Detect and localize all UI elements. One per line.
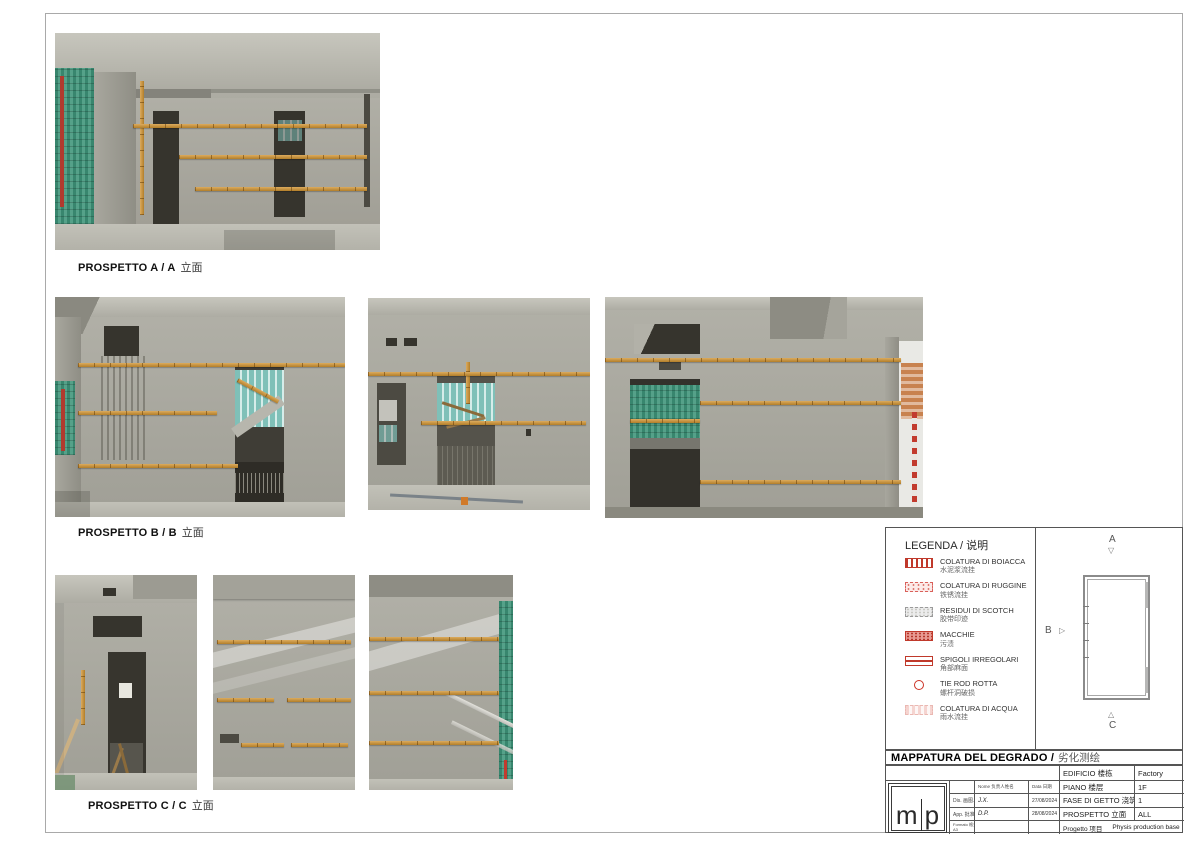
sig-app-label: App. 批准人: [949, 807, 974, 820]
rubble: [55, 491, 90, 517]
dark-object: [220, 734, 238, 743]
plan-outline-inner: [1087, 579, 1146, 696]
ceiling-beam: [133, 575, 197, 599]
bamboo-pole: [700, 480, 900, 484]
drip-stains: [101, 356, 145, 459]
bamboo-pole: [291, 743, 348, 747]
legend-item: TIE ROD ROTTA螺杆洞破损: [905, 679, 1033, 697]
bamboo-pole-vertical: [140, 81, 144, 216]
plan-tick: [1083, 623, 1089, 624]
photo-prospetto-a: [55, 33, 380, 250]
plan-wall-segment: [1145, 582, 1148, 609]
legend-item: MACCHIE污渍: [905, 630, 1033, 648]
bamboo-pole: [421, 421, 585, 425]
bamboo-pole: [241, 743, 284, 747]
striped-pole: [912, 412, 917, 507]
floor: [213, 777, 355, 790]
legend-item: RESIDUI DI SCOTCH胶带印迹: [905, 606, 1033, 624]
bamboo-pole: [369, 741, 499, 745]
empty-cell: [1028, 820, 1059, 834]
ceiling-slot: [103, 588, 116, 597]
key-plan: A ▽ B ▷ △ C: [1035, 527, 1183, 750]
plan-tick: [1083, 657, 1089, 658]
legend-item: COLATURA DI BOIACCA水泥浆流挂: [905, 557, 1033, 575]
caption-b-text: PROSPETTO B / B: [78, 527, 177, 539]
wall-slot: [404, 338, 417, 345]
wall-niche: [93, 616, 141, 638]
legend-label-zh: 铁锈流挂: [940, 591, 1027, 600]
floor-edge: [605, 507, 923, 518]
bamboo-pole: [78, 464, 238, 468]
logo-cell: m p: [886, 780, 949, 834]
bamboo-pole: [133, 124, 367, 128]
wall-slot: [386, 338, 397, 345]
bamboo-pole: [369, 637, 499, 641]
legend-label-zh: 雨水流挂: [940, 713, 1018, 722]
ceiling-beam: [369, 575, 513, 597]
sig-app-name: D.P.: [974, 807, 1028, 820]
concrete-column: [94, 72, 136, 224]
legend-item: COLATURA DI RUGGINE铁锈流挂: [905, 581, 1033, 599]
ceiling-beam: [770, 297, 846, 339]
bamboo-pole: [368, 372, 590, 376]
floor: [55, 773, 197, 790]
swatch-colatura-ruggine: [905, 582, 933, 592]
progetto-value: Physis production base: [1112, 824, 1179, 831]
plan-wall-segment: [1145, 667, 1148, 694]
netting-glimpse: [55, 381, 75, 456]
bamboo-pole: [179, 155, 368, 159]
legend-item: COLATURA DI ACQUA雨水流挂: [905, 704, 1033, 722]
empty-cell: [974, 820, 1028, 834]
photo-prospetto-c3: [369, 575, 513, 790]
prospetto-label: PROSPETTO 立面: [1059, 807, 1134, 820]
legend-label: TIE ROD ROTTA: [940, 679, 997, 688]
photo-prospetto-b3: [605, 297, 923, 518]
edificio-value: Factory: [1134, 766, 1184, 780]
caption-prospetto-a: PROSPETTO A / A立面: [78, 259, 203, 275]
mesh-fence: [437, 446, 495, 484]
wall-niche: [104, 326, 139, 357]
titleblock-table: m p Nome 负责人姓名 Data 日期 Dis. 画图人 J.X. 27/…: [885, 765, 1183, 833]
titleblock-title-it: MAPPATURA DEL DEGRADO /: [891, 752, 1054, 764]
sig-nome-header: Nome 负责人姓名: [974, 780, 1028, 793]
scaffold-bar: [630, 419, 700, 423]
fase-value: 1: [1134, 793, 1184, 807]
plan-marker-c: C: [1109, 721, 1116, 731]
formato-value: A3: [953, 827, 974, 832]
caption-b-zh: 立面: [182, 527, 204, 539]
bright-window-beyond: [119, 683, 132, 698]
legend-label-zh: 螺杆洞破损: [940, 689, 997, 698]
arrow-up-icon: △: [1108, 711, 1114, 719]
plan-tick: [1083, 640, 1089, 641]
caption-c-zh: 立面: [192, 800, 214, 812]
legend-label: COLATURA DI ACQUA: [940, 704, 1018, 713]
niche-light: [634, 324, 701, 355]
legend-label: COLATURA DI BOIACCA: [940, 557, 1025, 566]
bamboo-pole: [195, 187, 367, 191]
legend-label-zh: 水泥浆流挂: [940, 566, 1025, 575]
logo-letter-p: p: [925, 802, 939, 828]
arrow-right-icon: ▷: [1059, 627, 1065, 635]
edificio-label: EDIFICIO 楼栋: [1059, 766, 1134, 780]
progetto-label: Progetto 项目: [1063, 823, 1102, 833]
swatch-tie-rod-rotta: [905, 680, 933, 690]
swatch-spigoli-irregolari: [905, 656, 933, 666]
formato-cell: Formato 格式A3: [949, 820, 974, 834]
floor: [55, 502, 345, 517]
distant-building: [901, 363, 923, 418]
swatch-residui-scotch: [905, 607, 933, 617]
legend-label: RESIDUI DI SCOTCH: [940, 606, 1014, 615]
plan-marker-a: A: [1109, 535, 1116, 545]
opening-highlight: [379, 400, 397, 421]
caption-prospetto-c: PROSPETTO C / C立面: [88, 797, 214, 813]
photo-prospetto-c2: [213, 575, 355, 790]
yellow-stick: [81, 670, 85, 726]
bamboo-pole: [700, 401, 900, 405]
drawing-sheet: PROSPETTO A / A立面: [0, 0, 1200, 848]
mesh-fence: [235, 473, 284, 493]
titleblock-title-zh: 劣化测绘: [1058, 750, 1100, 765]
legend-label: COLATURA DI RUGGINE: [940, 581, 1027, 590]
fase-label: FASE DI GETTO 浇筑阶段: [1059, 793, 1134, 807]
legend-title: LEGENDA / 说明: [905, 537, 988, 553]
ceiling-strip: [368, 298, 590, 315]
deck-beyond: [630, 438, 700, 449]
ceiling-strip: [605, 297, 923, 310]
scaffold-pole-red: [61, 389, 65, 451]
legend-label-zh: 角部麻面: [940, 664, 1018, 673]
legend-label: SPIGOLI IRREGOLARI: [940, 655, 1018, 664]
company-logo: m p: [888, 783, 947, 833]
caption-c-text: PROSPETTO C / C: [88, 800, 187, 812]
bamboo-pole: [217, 640, 350, 644]
bamboo-pole: [78, 411, 217, 415]
prospetto-value: ALL: [1134, 807, 1184, 820]
sig-app-date: 28/08/2024: [1028, 807, 1059, 820]
legend-label: MACCHIE: [940, 630, 975, 639]
bamboo-pole: [78, 363, 345, 367]
floor-shadow: [224, 230, 335, 250]
legend-item: SPIGOLI IRREGOLARI角部麻面: [905, 655, 1033, 673]
window-opening: [377, 383, 406, 466]
orange-object: [461, 497, 468, 504]
bamboo-pole-vertical: [466, 362, 470, 404]
caption-a-zh: 立面: [181, 262, 203, 274]
photo-prospetto-c1: [55, 575, 197, 790]
swatch-macchie: [905, 631, 933, 641]
legend-label-zh: 污渍: [940, 640, 975, 649]
sig-corner-cell: [949, 780, 974, 793]
bamboo-pole: [217, 698, 274, 702]
green-patch: [55, 775, 75, 790]
sig-dis-label: Dis. 画图人: [949, 793, 974, 807]
sig-data-header: Data 日期: [1028, 780, 1059, 793]
opening-glimpse: [379, 425, 397, 442]
bamboo-pole: [605, 358, 901, 362]
sig-dis-date: 27/08/2024: [1028, 793, 1059, 807]
legend-list: COLATURA DI BOIACCA水泥浆流挂 COLATURA DI RUG…: [905, 557, 1033, 728]
logo-letter-m: m: [896, 802, 918, 828]
bamboo-pole: [287, 698, 351, 702]
logo-divider-bar: [921, 799, 922, 831]
plan-tick: [1083, 606, 1089, 607]
progetto-cell: Progetto 项目Physis production base: [1059, 820, 1184, 834]
piano-value: 1F: [1134, 780, 1184, 793]
sig-dis-name: J.X.: [974, 793, 1028, 807]
legend-label-zh: 胶带印迹: [940, 615, 1014, 624]
photo-prospetto-b1: [55, 297, 345, 517]
plan-outline: [1083, 575, 1150, 700]
titleblock-title: MAPPATURA DEL DEGRADO / 劣化测绘: [885, 750, 1183, 765]
wall-edge-shade: [55, 603, 64, 775]
photo-prospetto-b2: [368, 298, 590, 510]
caption-a-text: PROSPETTO A / A: [78, 262, 176, 274]
plan-marker-b: B: [1045, 626, 1052, 636]
swatch-colatura-acqua: [905, 705, 933, 715]
floor: [369, 779, 513, 790]
scaffold-pole-red: [60, 76, 64, 206]
piano-label: PIANO 楼层: [1059, 780, 1134, 793]
wall-socket: [526, 429, 532, 435]
ceiling-slab: [213, 575, 355, 599]
caption-prospetto-b: PROSPETTO B / B立面: [78, 524, 204, 540]
bamboo-pole: [369, 691, 499, 695]
opening-glimpse: [278, 120, 302, 142]
arrow-down-icon: ▽: [1108, 547, 1114, 555]
swatch-colatura-boiacca: [905, 558, 933, 568]
